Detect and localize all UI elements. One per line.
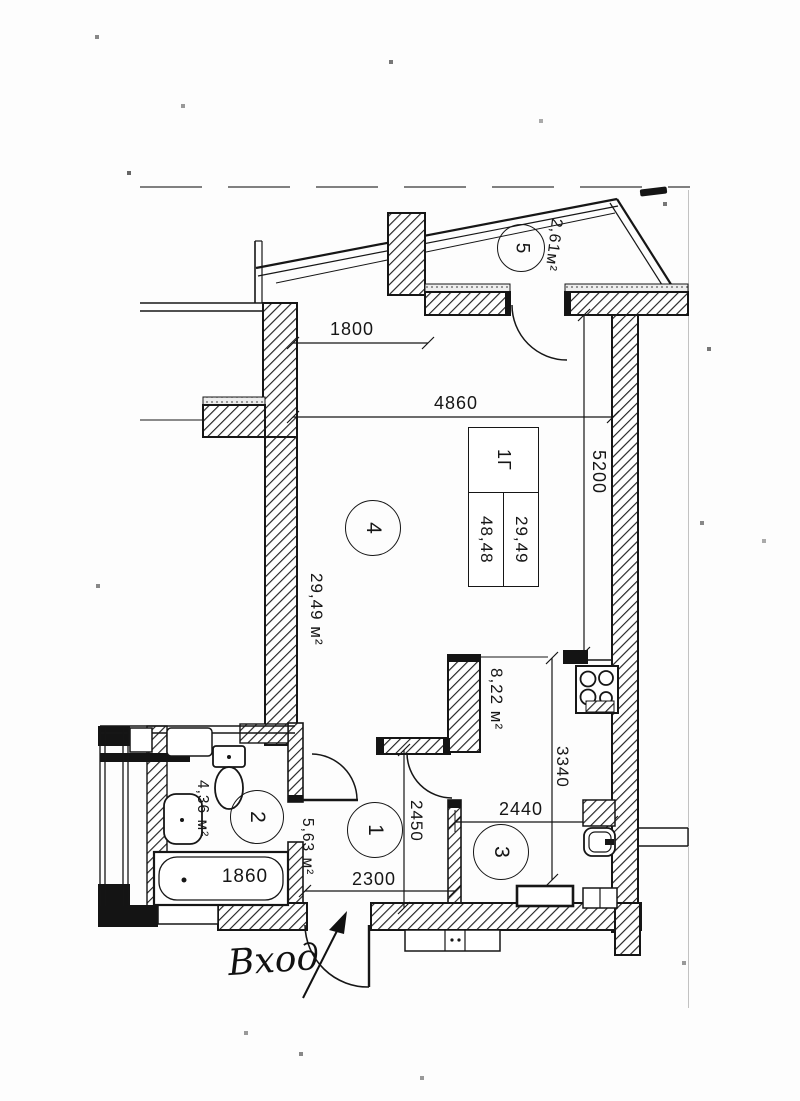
dim-label-2440: 2440	[481, 799, 561, 820]
kitchen-counters	[517, 886, 617, 908]
stamp-total-area-value: 48,48	[476, 516, 496, 564]
room-number-1: 1	[363, 824, 387, 836]
stove	[576, 666, 618, 713]
room-circle-3: 3	[473, 824, 529, 880]
room-number-4: 4	[361, 522, 385, 534]
stamp-total-area-cell: 48,48	[469, 493, 504, 586]
stamp-type-value: 1Г	[493, 449, 514, 471]
dim-label-4860: 4860	[416, 393, 496, 414]
room-number-3: 3	[489, 846, 513, 858]
apartment-stamp-table: 1Г 48,48 29,49	[468, 427, 539, 587]
scanned-floor-plan-page: 5 4 2 1 3 2,61м² 29,49 м² 8,22 м² 4,36 м…	[0, 0, 800, 1101]
dim-label-1800: 1800	[312, 319, 392, 340]
stamp-living-area-cell: 29,49	[504, 493, 538, 586]
room-circle-2: 2	[230, 790, 284, 844]
dim-label-5200: 5200	[588, 450, 609, 514]
radiator	[405, 930, 500, 951]
dim-label-2450: 2450	[406, 800, 426, 850]
room-number-5: 5	[510, 243, 532, 254]
room-circle-4: 4	[345, 500, 401, 556]
dim-label-tub-1860: 1860	[205, 866, 285, 888]
stamp-type-cell: 1Г	[469, 428, 538, 493]
dim-label-3340: 3340	[552, 746, 572, 798]
room-circle-1: 1	[347, 802, 403, 858]
entrance-label: Вход	[227, 937, 321, 984]
room-number-2: 2	[245, 811, 269, 823]
area-label-room4: 29,49 м²	[306, 573, 326, 675]
floorplan-drawing	[0, 0, 800, 1101]
area-label-room3: 8,22 м²	[486, 668, 506, 756]
kitchen-sink	[583, 800, 615, 856]
stamp-areas-row: 48,48 29,49	[469, 493, 538, 586]
area-label-room2: 4,36 м²	[193, 780, 211, 856]
dim-label-2300: 2300	[334, 869, 414, 890]
room-circle-5: 5	[497, 224, 545, 272]
stamp-living-area-value: 29,49	[511, 516, 531, 564]
area-label-room1: 5,63 м²	[298, 818, 316, 890]
